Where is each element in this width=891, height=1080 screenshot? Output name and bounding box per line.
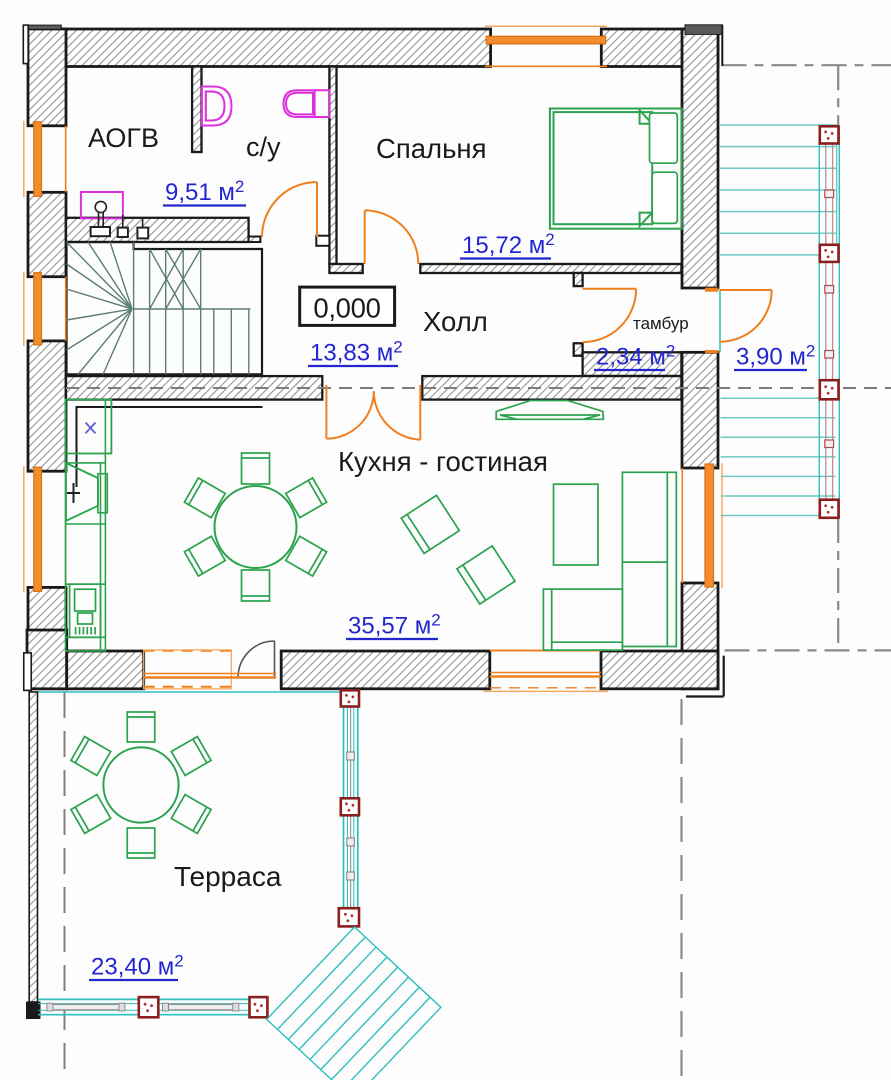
svg-text:23,40 м2: 23,40 м2 bbox=[91, 952, 184, 981]
svg-text:35,57 м2: 35,57 м2 bbox=[348, 611, 441, 640]
svg-text:Кухня - гостиная: Кухня - гостиная bbox=[338, 446, 548, 477]
svg-text:0,000: 0,000 bbox=[313, 293, 380, 324]
svg-text:с/у: с/у bbox=[246, 132, 281, 162]
svg-text:3,90 м2: 3,90 м2 bbox=[736, 342, 815, 371]
svg-text:2,34 м2: 2,34 м2 bbox=[596, 342, 675, 371]
svg-text:АОГВ: АОГВ bbox=[88, 123, 159, 153]
svg-text:15,72 м2: 15,72 м2 bbox=[462, 230, 555, 259]
svg-text:9,51 м2: 9,51 м2 bbox=[165, 177, 244, 206]
svg-text:Холл: Холл bbox=[423, 306, 488, 337]
svg-text:13,83 м2: 13,83 м2 bbox=[310, 338, 403, 367]
svg-text:Терраса: Терраса bbox=[174, 861, 282, 892]
svg-text:тамбур: тамбур bbox=[633, 314, 689, 333]
svg-text:Спальня: Спальня bbox=[376, 133, 487, 164]
